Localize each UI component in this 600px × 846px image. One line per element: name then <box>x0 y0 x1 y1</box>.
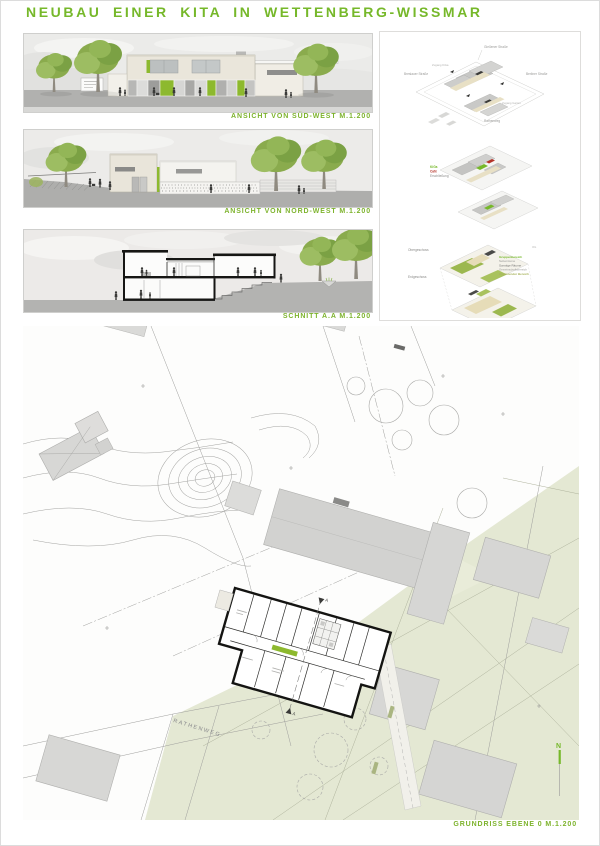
foreground-strip <box>24 107 372 112</box>
caption-elevation-northwest: ANSICHT VON NORD-WEST M.1.200 <box>224 208 371 215</box>
north-letter: N <box>556 743 561 750</box>
street-label-top: Gießener Straße <box>484 45 508 49</box>
street-label-right: Berliner Straße <box>526 72 548 76</box>
page-title: NEUBAU EINER KITA IN WETTENBERG-WISSMAR <box>26 4 483 20</box>
uses-legend-erschliessung: Erschließung <box>430 174 449 178</box>
context-note-upper: Zugang KiGa <box>432 63 449 67</box>
caption-elevation-southwest: ANSICHT VON SÜD-WEST M.1.200 <box>231 113 371 120</box>
elevation-southwest-drawing <box>24 34 372 112</box>
levels-lower-tag: EG <box>524 317 528 318</box>
concept-diagrams: Gießener Straße Breslauer Straße Berline… <box>380 32 578 318</box>
caption-site-plan: GRUNDRISS EBENE 0 M.1.200 <box>453 821 577 828</box>
street-label-bottom: Rathenweg <box>484 119 500 123</box>
uses-legend-kiga: KiGa <box>430 165 438 169</box>
uses-legend-cafe: Café <box>430 169 437 173</box>
levels-lower-label: Erdgeschoss <box>408 275 427 279</box>
glazing-band <box>128 80 255 96</box>
section-drawing <box>24 230 372 312</box>
section-figure <box>23 229 373 313</box>
caption-section: SCHNITT A.A M.1.200 <box>283 313 371 320</box>
site-plan-figure: A A RATHENWEG N <box>23 326 579 820</box>
elevation-northwest-drawing <box>24 130 372 207</box>
presentation-board: NEUBAU EINER KITA IN WETTENBERG-WISSMAR <box>0 0 600 846</box>
concept-diagrams-panel: Gießener Straße Breslauer Straße Berline… <box>379 31 581 321</box>
levels-upper-label: Obergeschoss <box>408 248 429 252</box>
levels-legend-5: Ergänzender Bereich <box>499 272 529 276</box>
context-note-lower: Zugang Garten <box>502 101 521 105</box>
levels-upper-tag: OG <box>532 245 536 249</box>
street-label-left: Breslauer Straße <box>404 72 428 76</box>
elevation-northwest-figure <box>23 129 373 208</box>
site-plan-drawing: A A RATHENWEG N <box>23 326 579 820</box>
elevation-southwest-figure <box>23 33 373 113</box>
